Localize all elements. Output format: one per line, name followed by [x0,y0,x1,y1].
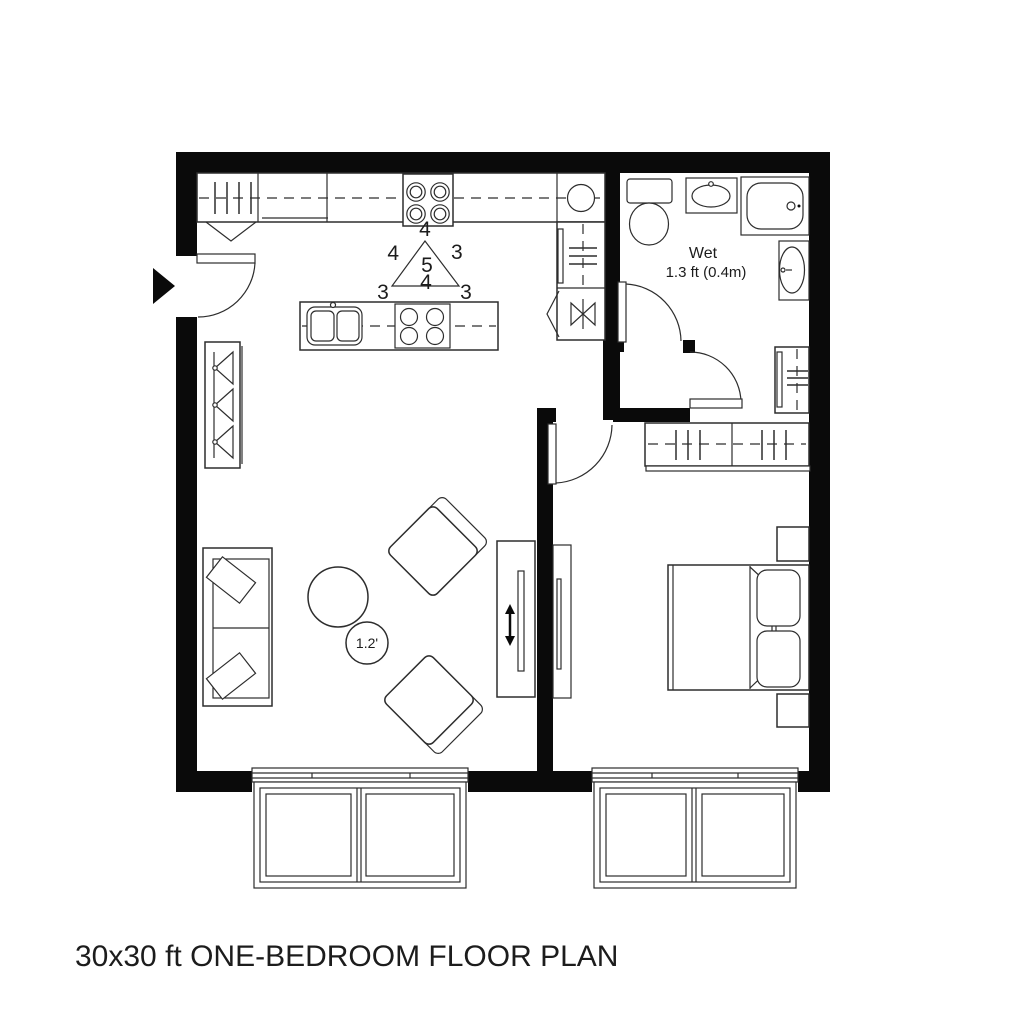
bathroom-door [618,282,681,342]
bedroom-door-hall [690,352,742,408]
plan-title: 30x30 ft ONE-BEDROOM FLOOR PLAN [75,940,618,973]
wall-top [176,152,830,173]
sofa [203,548,272,706]
bathroom-basin [779,241,809,300]
shoe-rack [205,342,242,468]
wall-bottom-middle [468,771,592,792]
rug-dimension-label: 1.2' [356,635,378,651]
work-triangle: 4 4 3 5 4 3 3 [377,218,472,304]
window-left [252,768,468,888]
work-triangle-apex-label: 4 [419,218,431,241]
entry-arrow-icon [153,268,175,304]
floor-plan-drawing: 4 4 3 5 4 3 3 Wet 1.3 ft (0.4m) [0,0,1024,1024]
armchair-bottom [382,653,485,756]
work-triangle-bottom-right-label: 3 [460,281,472,304]
wet-room-dimension: 1.3 ft (0.4m) [666,264,747,281]
kitchen-counter [197,173,605,222]
wall-left-lower [176,317,197,792]
wall-bath-stub [683,340,695,353]
armchair-top [386,495,489,598]
bedroom-tv-panel [553,545,571,698]
nightstand-bottom [777,694,809,727]
wall-left-upper [176,152,197,256]
window-right [592,768,798,888]
work-triangle-left-label: 4 [387,242,399,265]
wet-room-label: Wet [689,245,718,262]
island-cooktop [395,304,450,348]
work-triangle-base-label: 4 [420,271,432,294]
work-triangle-right-label: 3 [451,241,463,264]
kitchen-tall-cabinet [557,222,605,340]
bed [668,565,809,690]
pillow-top [757,570,800,626]
wall-bottom-right [798,771,830,792]
wardrobe [645,423,810,471]
wall-bedroom-top-b [613,408,690,422]
wall-bottom-left [176,771,252,792]
coffee-table [308,567,368,627]
kitchen-island [300,302,498,350]
bedroom-door-living [548,424,612,484]
nightstand-top [777,527,809,561]
toilet [627,179,672,245]
tv-console [497,541,535,697]
bathtub [741,177,809,235]
pillow-bottom [757,631,800,687]
island-sink [307,303,362,346]
entry-door [197,254,255,317]
bathroom-sink [686,178,737,213]
wall-right [809,152,830,792]
hallway-closet [775,347,809,413]
floor-plan-page: 4 4 3 5 4 3 3 Wet 1.3 ft (0.4m) [0,0,1024,1024]
rug-dimension-callout: 1.2' [346,622,388,664]
kitchen-round-sink [568,185,595,212]
work-triangle-bottom-left-label: 3 [377,281,389,304]
